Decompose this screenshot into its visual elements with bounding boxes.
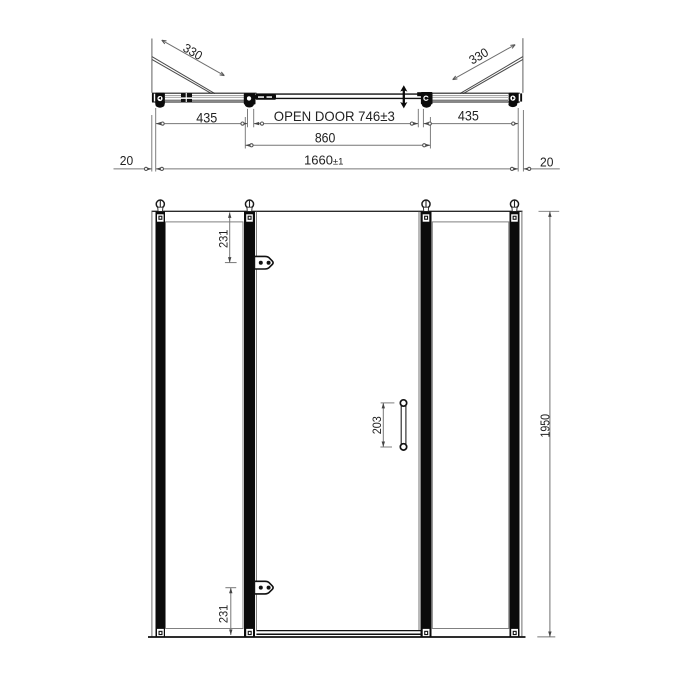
svg-text:231: 231 — [217, 604, 231, 623]
svg-text:231: 231 — [216, 229, 230, 248]
svg-text:20: 20 — [540, 154, 553, 169]
svg-text:1950: 1950 — [538, 414, 552, 438]
svg-text:860: 860 — [315, 130, 336, 145]
svg-text:435: 435 — [196, 109, 217, 125]
svg-text:OPEN DOOR 746±3: OPEN DOOR 746±3 — [274, 108, 395, 124]
svg-text:435: 435 — [458, 108, 479, 124]
svg-text:20: 20 — [120, 153, 133, 168]
svg-text:203: 203 — [370, 416, 384, 434]
